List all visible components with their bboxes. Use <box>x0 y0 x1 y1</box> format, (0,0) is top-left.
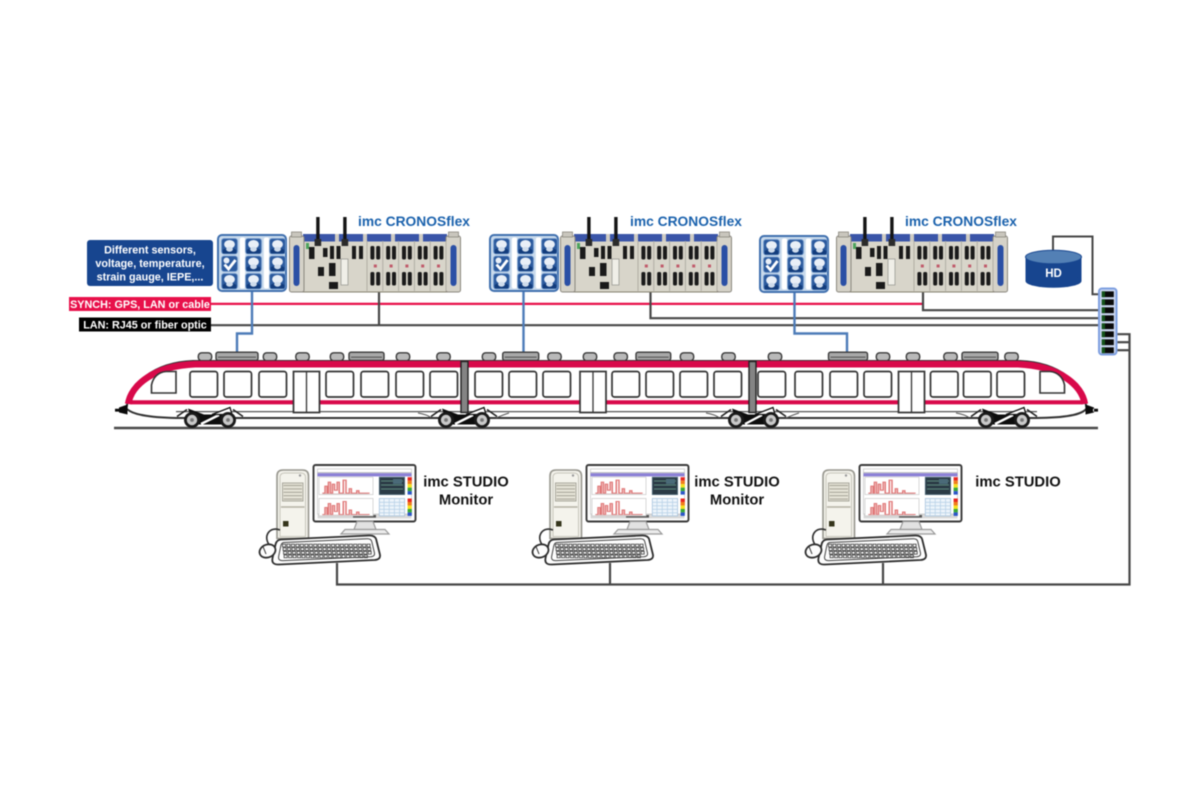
svg-text:strain gauge, IEPE,...: strain gauge, IEPE,... <box>97 272 204 284</box>
svg-text:imc STUDIO: imc STUDIO <box>975 475 1061 491</box>
svg-text:imc CRONOSflex: imc CRONOSflex <box>358 214 470 229</box>
svg-text:imc CRONOSflex: imc CRONOSflex <box>630 214 742 229</box>
svg-text:LAN: RJ45 or fiber optic: LAN: RJ45 or fiber optic <box>83 319 207 331</box>
svg-text:Different sensors,: Different sensors, <box>104 245 196 257</box>
svg-text:voltage, temperature,: voltage, temperature, <box>95 258 204 270</box>
svg-text:HD: HD <box>1045 268 1062 280</box>
svg-text:SYNCH: GPS, LAN or cable: SYNCH: GPS, LAN or cable <box>70 299 210 311</box>
svg-text:Monitor: Monitor <box>710 493 764 509</box>
svg-text:Monitor: Monitor <box>439 493 493 509</box>
svg-text:imc CRONOSflex: imc CRONOSflex <box>905 214 1017 229</box>
svg-text:imc STUDIO: imc STUDIO <box>694 475 780 491</box>
svg-text:imc STUDIO: imc STUDIO <box>423 475 509 491</box>
